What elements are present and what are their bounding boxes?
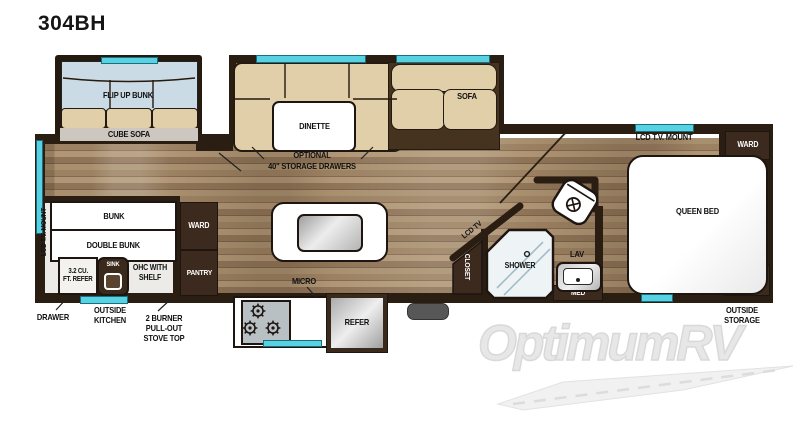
sofa-seat-cushion — [391, 89, 445, 130]
window-dinette-1 — [256, 55, 366, 63]
entry-step — [407, 303, 449, 320]
sofa-back-cushion — [391, 64, 497, 92]
page-title: 304BH — [38, 12, 106, 36]
outside-refer-line2: FT. REFER — [63, 276, 93, 284]
watermark-text: OptimumRV — [478, 318, 798, 368]
lav-sink — [556, 262, 602, 292]
watermark: OptimumRV — [478, 318, 798, 418]
floorplan-canvas: 304BH OptimumRV FLIP UP BUNK CUBE SOFA D… — [0, 0, 800, 425]
sink-label: SINK — [101, 262, 126, 269]
stove-top — [241, 300, 291, 345]
micro-label: MICRO — [285, 277, 324, 286]
door-outside-kitchen — [80, 296, 128, 304]
cube-sofa-strip: CUBE SOFA — [60, 128, 198, 141]
optional-drawers-line2: 40" STORAGE DRAWERS — [250, 162, 373, 171]
ward-top-label: WARD — [737, 141, 758, 149]
refer-label: REFER — [345, 318, 369, 327]
queen-bed: QUEEN BED — [627, 155, 768, 295]
wall-jog — [196, 143, 233, 151]
window-dinette-2 — [396, 55, 490, 63]
optional-drawers-line1: OPTIONAL — [268, 151, 356, 160]
lav-label: LAV — [560, 250, 593, 259]
dinette-label: DINETTE — [299, 122, 330, 131]
cube-sofa-cushion — [152, 108, 198, 129]
ohc-line2: SHELF — [127, 274, 173, 283]
outside-kitchen-callout-line2: KITCHEN — [85, 316, 134, 325]
lav-basin — [563, 268, 593, 285]
window-bedroom-bottom — [641, 294, 673, 302]
flip-up-bunk-mattress — [61, 61, 198, 111]
double-bunk-label: DOUBLE BUNK — [87, 241, 140, 250]
lcd-tv-mount-label: LCD T.V. MOUNT — [632, 133, 695, 142]
outside-storage-line1: OUTSIDE — [716, 306, 769, 315]
queen-bed-label: QUEEN BED — [637, 207, 758, 216]
shower-label: SHOWER — [491, 262, 549, 271]
sink-basin-icon — [104, 273, 122, 290]
outside-refer-line1: 3.2 CU. — [68, 268, 88, 276]
lav-drain — [576, 278, 580, 282]
outside-storage-line2: STORAGE — [716, 316, 769, 325]
window-bedroom-top — [635, 124, 694, 132]
pantry: PANTRY — [180, 250, 218, 296]
island-sink — [297, 214, 363, 252]
stove-callout-line3: STOVE TOP — [138, 334, 191, 343]
pantry-label: PANTRY — [186, 269, 211, 277]
cube-sofa-cushion — [106, 108, 152, 129]
sofa-label: SOFA — [441, 92, 492, 101]
stove-callout-line2: PULL-OUT — [138, 324, 191, 333]
bunk-label: BUNK — [103, 212, 124, 221]
drawer-callout: DRAWER — [29, 313, 77, 322]
flip-up-bunk-label: FLIP UP BUNK — [84, 91, 172, 100]
bunkroom-lcd-tv-mount-label: LCD T.V. MOUNT — [40, 200, 48, 265]
cube-sofa-label: CUBE SOFA — [108, 130, 150, 139]
stove-callout-line1: 2 BURNER — [138, 314, 191, 323]
wall-shower-left — [481, 229, 488, 299]
ward-bunkroom-label: WARD — [189, 222, 210, 230]
kitchen-island — [271, 202, 388, 262]
ward-bunkroom: WARD — [180, 202, 218, 250]
dinette-table: DINETTE — [272, 101, 356, 152]
window-front-bunk — [101, 57, 158, 64]
window-counter — [263, 340, 322, 347]
outside-kitchen-sink: SINK — [97, 257, 129, 296]
outside-kitchen-refer: 3.2 CU. FT. REFER — [58, 257, 98, 295]
cube-sofa-cushion — [61, 108, 106, 129]
ohc-line1: OHC WITH — [127, 264, 173, 273]
closet-label: CLOSET — [463, 244, 471, 289]
outside-kitchen-callout-line1: OUTSIDE — [85, 306, 134, 315]
refer: REFER — [327, 294, 387, 352]
